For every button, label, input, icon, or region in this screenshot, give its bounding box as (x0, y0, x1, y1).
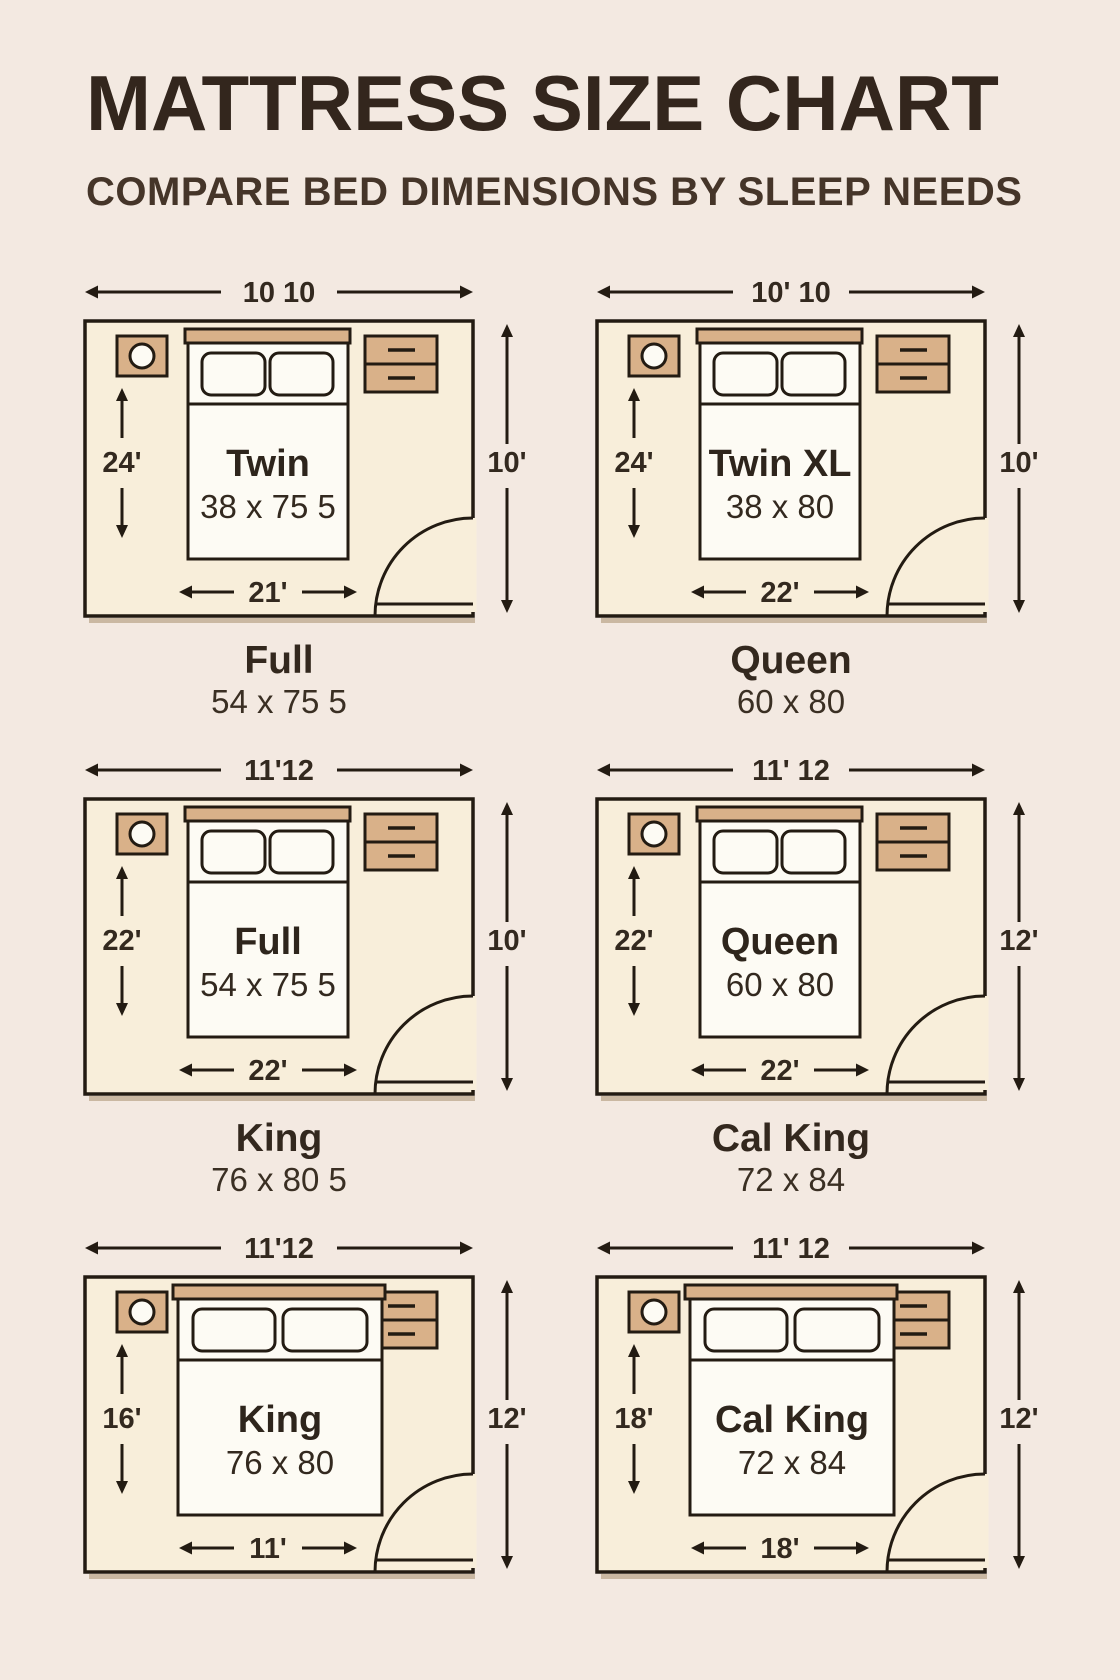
room-king: 11'12 (75, 1228, 545, 1588)
arrowhead-up-icon (1013, 1280, 1025, 1293)
right-dimension-arrow: 12' (999, 1280, 1038, 1569)
dresser (365, 336, 437, 392)
arrowhead-up-icon (1013, 324, 1025, 337)
arrowhead-up-icon (501, 324, 513, 337)
top-dimension-label: 11'12 (244, 1233, 314, 1265)
right-dimension-label: 10' (487, 925, 526, 957)
room-floorplan: 11' 12 (587, 1228, 1057, 1588)
page-title: MATTRESS SIZE CHART (86, 64, 1034, 142)
headboard (173, 1285, 385, 1299)
pillow-icon (283, 1309, 367, 1351)
pillow-icon (270, 831, 333, 873)
nightstand (629, 1292, 679, 1332)
pillow-icon (795, 1309, 879, 1351)
bed-size-label: 72 x 84 (738, 1444, 846, 1481)
right-dimension-label: 10' (487, 447, 526, 479)
bottom-dimension-label: 11' (249, 1533, 287, 1565)
bottom-dimension-label: 22' (760, 577, 799, 609)
headboard (685, 1285, 897, 1299)
caption-name: Queen (587, 640, 995, 682)
nightstand (117, 1292, 167, 1332)
top-dimension-arrow: 10 10 (85, 277, 473, 309)
arrowhead-right-icon (460, 286, 473, 299)
nightstand (117, 336, 167, 376)
right-dimension-label: 12' (487, 1403, 526, 1435)
bed-name-label: Full (234, 921, 302, 963)
bottom-dimension-label: 18' (760, 1533, 799, 1565)
top-dimension-label: 11'12 (244, 755, 314, 787)
lamp-icon (130, 1300, 154, 1324)
arrowhead-down-icon (1013, 1556, 1025, 1569)
top-dimension-label: 11' 12 (752, 1233, 830, 1265)
pillow-icon (705, 1309, 787, 1351)
top-dimension-label: 11' 12 (752, 755, 830, 787)
room-floorplan: 11' 12 (587, 750, 1057, 1110)
caption-size: 76 x 80 5 (75, 1160, 483, 1200)
right-dimension-arrow: 10' (999, 324, 1038, 613)
bed-name-label: Queen (721, 921, 839, 963)
bed: King 76 x 80 (173, 1285, 385, 1515)
dresser (877, 336, 949, 392)
left-dimension-label: 24' (614, 447, 653, 479)
bed-size-label: 60 x 80 (726, 966, 834, 1003)
pillow-icon (202, 353, 265, 395)
nightstand (629, 336, 679, 376)
page-subtitle: COMPARE BED DIMENSIONS BY SLEEP NEEDS (86, 172, 1034, 212)
room-twin-xl: 10' 10 (587, 272, 1057, 632)
room-floorplan: 11'12 (75, 750, 545, 1110)
left-dimension-label: 22' (102, 925, 141, 957)
left-dimension-label: 24' (102, 447, 141, 479)
headboard (697, 807, 862, 821)
bed-name-label: Twin (226, 443, 310, 485)
nightstand (117, 814, 167, 854)
arrowhead-up-icon (501, 1280, 513, 1293)
nightstand (629, 814, 679, 854)
rooms-grid: 10 10 (0, 272, 1120, 1588)
arrowhead-down-icon (1013, 600, 1025, 613)
bed: Twin 38 x 75 5 (185, 329, 350, 559)
rooms-row-1: 10 10 (0, 272, 1120, 632)
bottom-dimension-label: 21' (248, 577, 287, 609)
arrowhead-right-icon (972, 1242, 985, 1255)
left-dimension-label: 22' (614, 925, 653, 957)
room-full: 11'12 (75, 750, 545, 1110)
room-queen: 11' 12 (587, 750, 1057, 1110)
captions-row-1: Full 54 x 75 5 Queen 60 x 80 (0, 640, 1120, 722)
room-twin: 10 10 (75, 272, 545, 632)
top-dimension-label: 10' 10 (751, 277, 830, 309)
arrowhead-right-icon (460, 1242, 473, 1255)
lamp-icon (642, 344, 666, 368)
arrowhead-right-icon (972, 764, 985, 777)
caption-full: Full 54 x 75 5 (75, 640, 545, 722)
caption-queen: Queen 60 x 80 (587, 640, 1057, 722)
left-dimension-label: 18' (614, 1403, 653, 1435)
bed-size-label: 54 x 75 5 (200, 966, 336, 1003)
caption-size: 72 x 84 (587, 1160, 995, 1200)
right-dimension-arrow: 10' (487, 324, 526, 613)
rooms-row-3: 11'12 (0, 1228, 1120, 1588)
bed-name-label: King (238, 1399, 322, 1441)
dresser (877, 814, 949, 870)
bed: Queen 60 x 80 (697, 807, 862, 1037)
pillow-icon (193, 1309, 275, 1351)
top-dimension-arrow: 11'12 (85, 1233, 473, 1265)
top-dimension-arrow: 10' 10 (597, 277, 985, 309)
top-dimension-label: 10 10 (243, 277, 316, 309)
arrowhead-down-icon (501, 600, 513, 613)
arrowhead-down-icon (1013, 1078, 1025, 1091)
pillow-icon (782, 353, 845, 395)
bed-size-label: 38 x 75 5 (200, 488, 336, 525)
top-dimension-arrow: 11' 12 (597, 755, 985, 787)
right-dimension-label: 12' (999, 925, 1038, 957)
caption-cal-king: Cal King 72 x 84 (587, 1118, 1057, 1200)
pillow-icon (782, 831, 845, 873)
caption-name: Cal King (587, 1118, 995, 1160)
lamp-icon (130, 344, 154, 368)
bed-name-label: Twin XL (709, 443, 852, 485)
arrowhead-down-icon (501, 1556, 513, 1569)
right-dimension-label: 10' (999, 447, 1038, 479)
arrowhead-right-icon (972, 286, 985, 299)
top-dimension-arrow: 11'12 (85, 755, 473, 787)
caption-king: King 76 x 80 5 (75, 1118, 545, 1200)
captions-row-2: King 76 x 80 5 Cal King 72 x 84 (0, 1118, 1120, 1200)
bed: Full 54 x 75 5 (185, 807, 350, 1037)
pillow-icon (202, 831, 265, 873)
headboard (185, 807, 350, 821)
arrowhead-up-icon (501, 802, 513, 815)
headboard (697, 329, 862, 343)
caption-name: Full (75, 640, 483, 682)
bed-size-label: 38 x 80 (726, 488, 834, 525)
lamp-icon (130, 822, 154, 846)
top-dimension-arrow: 11' 12 (597, 1233, 985, 1265)
caption-size: 60 x 80 (587, 682, 995, 722)
bottom-dimension-label: 22' (248, 1055, 287, 1087)
headboard (185, 329, 350, 343)
bottom-dimension-label: 22' (760, 1055, 799, 1087)
room-floorplan: 10 10 (75, 272, 545, 632)
bed: Cal King 72 x 84 (685, 1285, 897, 1515)
lamp-icon (642, 822, 666, 846)
bed-name-label: Cal King (715, 1399, 869, 1441)
right-dimension-label: 12' (999, 1403, 1038, 1435)
pillow-icon (270, 353, 333, 395)
caption-name: King (75, 1118, 483, 1160)
room-floorplan: 10' 10 (587, 272, 1057, 632)
right-dimension-arrow: 12' (487, 1280, 526, 1569)
rooms-row-2: 11'12 (0, 750, 1120, 1110)
bed: Twin XL 38 x 80 (697, 329, 862, 559)
arrowhead-down-icon (501, 1078, 513, 1091)
left-dimension-label: 16' (102, 1403, 141, 1435)
pillow-icon (714, 353, 777, 395)
dresser (365, 814, 437, 870)
right-dimension-arrow: 10' (487, 802, 526, 1091)
bed-size-label: 76 x 80 (226, 1444, 334, 1481)
header: MATTRESS SIZE CHART COMPARE BED DIMENSIO… (0, 0, 1120, 212)
room-cal-king: 11' 12 (587, 1228, 1057, 1588)
arrowhead-up-icon (1013, 802, 1025, 815)
right-dimension-arrow: 12' (999, 802, 1038, 1091)
arrowhead-right-icon (460, 764, 473, 777)
lamp-icon (642, 1300, 666, 1324)
room-floorplan: 11'12 (75, 1228, 545, 1588)
pillow-icon (714, 831, 777, 873)
caption-size: 54 x 75 5 (75, 682, 483, 722)
